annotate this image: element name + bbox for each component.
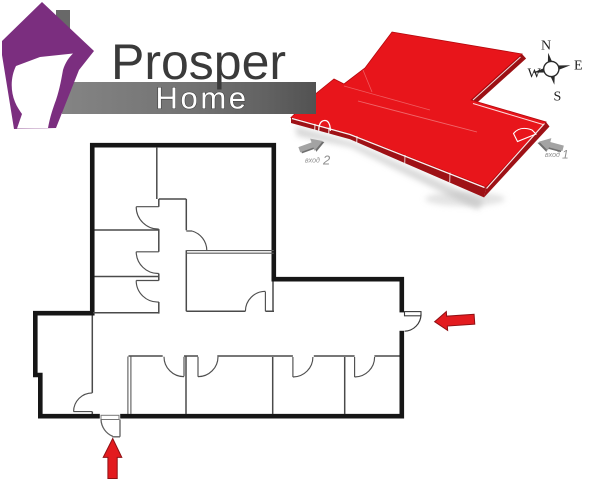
svg-text:S: S <box>554 90 562 105</box>
svg-text:Home: Home <box>156 81 249 116</box>
svg-text:вход: вход <box>545 151 560 159</box>
svg-text:E: E <box>574 59 583 74</box>
svg-text:вход: вход <box>305 157 320 165</box>
svg-text:W: W <box>528 67 542 82</box>
svg-text:1: 1 <box>562 148 569 162</box>
svg-text:2: 2 <box>322 153 331 168</box>
svg-text:N: N <box>541 39 551 54</box>
